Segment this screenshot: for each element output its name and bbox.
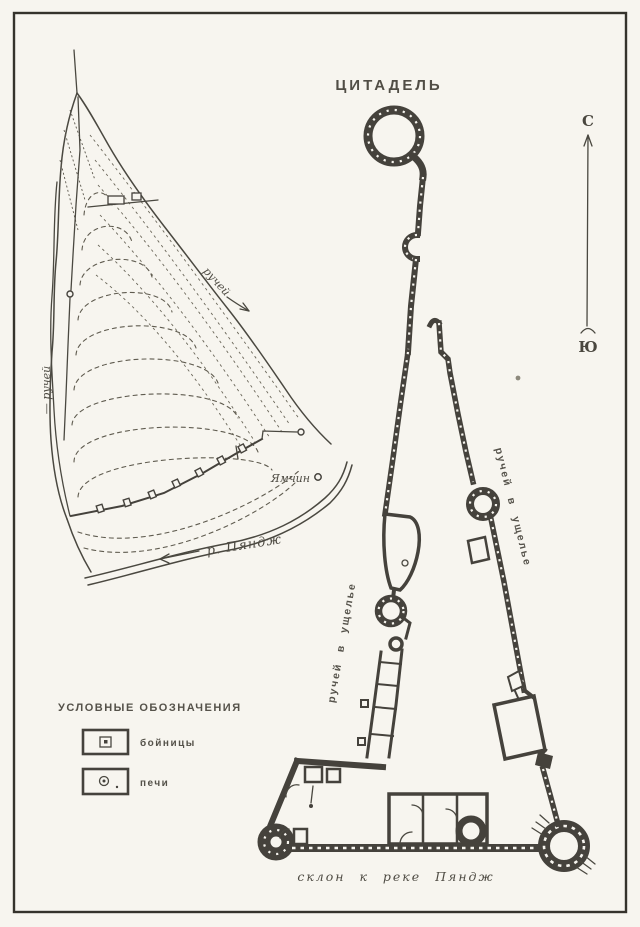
citadel-ring bbox=[368, 110, 423, 177]
oven-icon-dot bbox=[103, 780, 106, 783]
south-round-tower bbox=[459, 819, 483, 843]
apex-hatching bbox=[60, 110, 95, 230]
west-bastion bbox=[384, 514, 419, 590]
scanned-figure: — ручей ручей р. Пяндж Ямчин ЦИТАДЕЛЬ bbox=[0, 0, 640, 927]
legend-item-ovens: печи bbox=[83, 769, 169, 794]
stream-right-arrow bbox=[227, 297, 249, 311]
settlement-label: Ямчин bbox=[270, 472, 310, 485]
summit-spike bbox=[74, 50, 77, 93]
loophole-icon-dot bbox=[104, 740, 108, 744]
hill-left-edge bbox=[50, 93, 77, 519]
legend: УСЛОВНЫЕ ОБОЗНАЧЕНИЯ бойницы печи bbox=[58, 702, 242, 794]
small-turret bbox=[390, 638, 402, 650]
print-speck bbox=[516, 376, 521, 381]
settlement-marker bbox=[315, 474, 321, 480]
legend-heading: УСЛОВНЫЕ ОБОЗНАЧЕНИЯ bbox=[58, 702, 242, 714]
semicircle-tower bbox=[405, 235, 417, 259]
slope-scree-lines bbox=[90, 135, 300, 445]
hill-right-edge bbox=[77, 93, 331, 444]
corner-room bbox=[305, 767, 322, 782]
wall-room bbox=[294, 829, 307, 844]
legend-item-label: печи bbox=[140, 778, 169, 789]
compass-needle bbox=[587, 135, 588, 326]
river-lines bbox=[85, 462, 352, 585]
fortress-plan: ЦИТАДЕЛЬ bbox=[264, 77, 595, 884]
east-wall-room bbox=[494, 696, 545, 759]
compass-rose: С Ю bbox=[578, 112, 597, 356]
hill-foot bbox=[67, 519, 91, 572]
slope-caption: склон к реке Пяндж bbox=[297, 869, 494, 884]
wall-end-marker bbox=[298, 429, 304, 435]
compass-south-label: Ю bbox=[578, 338, 597, 356]
corner-room bbox=[327, 769, 340, 782]
legend-item-loopholes: бойницы bbox=[83, 730, 196, 754]
topo-map: — ручей ручей р. Пяндж Ямчин bbox=[40, 50, 352, 585]
small-annex bbox=[508, 671, 523, 691]
gorge-label-left: ручей в ущелье bbox=[326, 581, 359, 704]
southeast-tower bbox=[532, 815, 595, 874]
legend-item-label: бойницы bbox=[140, 737, 196, 749]
stream-left-label: — ручей bbox=[40, 366, 53, 414]
river-label: р. Пяндж bbox=[206, 532, 284, 559]
oven-mark bbox=[309, 804, 313, 808]
west-gallery bbox=[358, 650, 402, 757]
east-gate bbox=[468, 537, 489, 563]
southwest-corner bbox=[264, 761, 383, 854]
hill-wall-towers bbox=[96, 444, 246, 513]
north-spine-wall bbox=[405, 177, 423, 352]
compass-north-label: С bbox=[582, 112, 594, 130]
south-building bbox=[389, 794, 487, 844]
east-wall bbox=[430, 320, 558, 824]
plan-title: ЦИТАДЕЛЬ bbox=[335, 77, 442, 94]
west-wall bbox=[358, 352, 419, 757]
